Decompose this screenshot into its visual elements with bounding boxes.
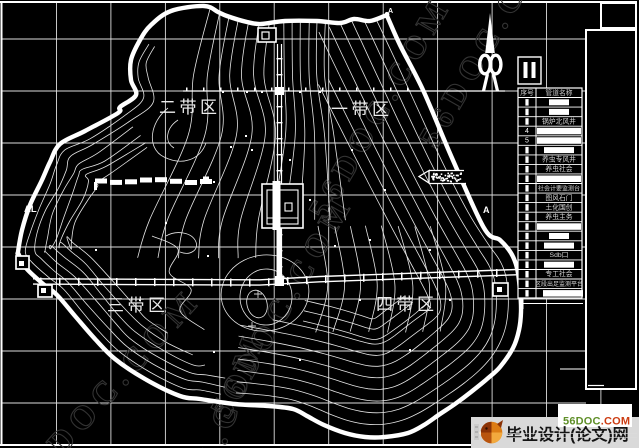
svg-text:四带区: 四带区	[376, 295, 438, 314]
svg-text:5: 5	[525, 138, 529, 145]
svg-text:Sdb口: Sdb口	[550, 251, 569, 259]
svg-text:二带区: 二带区	[159, 98, 221, 117]
svg-text:养虫主务: 养虫主务	[545, 212, 572, 221]
svg-text:序号: 序号	[520, 88, 534, 97]
svg-text:养虫社会: 养虫社会	[545, 164, 572, 173]
svg-text:A: A	[388, 8, 393, 15]
svg-text:三带区: 三带区	[107, 296, 169, 315]
svg-text:AL: AL	[24, 204, 37, 215]
svg-text:养虫专风井: 养虫专风井	[542, 155, 576, 164]
svg-text:一带区: 一带区	[331, 100, 393, 119]
svg-text:区段出足监测平台: 区段出足监测平台	[535, 280, 583, 288]
svg-text:4: 4	[525, 128, 529, 135]
svg-text:管道名称: 管道名称	[545, 88, 572, 97]
svg-text:专工社会: 专工社会	[545, 269, 572, 278]
svg-text:锅炉北风井: 锅炉北风井	[542, 116, 576, 125]
svg-text:图风石门: 图风石门	[545, 193, 572, 202]
svg-text:56DOC.COM: 56DOC.COM	[563, 416, 630, 428]
svg-text:土化国创: 土化国创	[545, 202, 572, 211]
svg-text:毕业设计(论文)网: 毕业设计(论文)网	[506, 425, 629, 444]
svg-text:社会计要监测台: 社会计要监测台	[538, 184, 580, 192]
svg-text:A: A	[483, 205, 490, 215]
